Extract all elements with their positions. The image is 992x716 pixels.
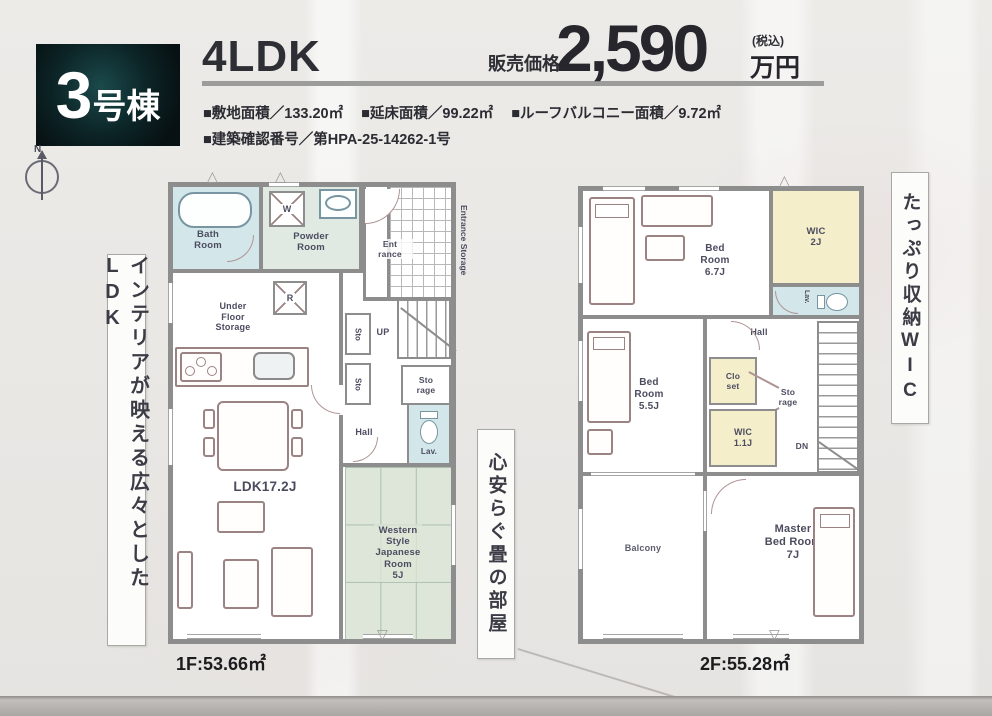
spec-confirmation: ■建築確認番号／第HPA-25-14262-1号 — [203, 132, 451, 148]
wall-ldk-divider — [339, 273, 343, 639]
hall-japanese-door-arc — [353, 437, 378, 462]
compass-needle — [41, 156, 43, 200]
room-powder-label: Powder Room — [275, 231, 347, 253]
toilet-icon — [817, 295, 825, 309]
price-label: 販売価格 — [488, 50, 560, 76]
room-wic-2j-label: WIC 2J — [806, 226, 825, 248]
washing-machine-label: W — [281, 204, 294, 214]
refrigerator-icon: R — [273, 281, 307, 315]
stove-burner — [196, 357, 206, 367]
compass-arrowhead — [37, 150, 47, 159]
plan-type: 4LDK — [202, 32, 321, 82]
toilet-icon — [420, 411, 438, 419]
room-bedroom1-label: Bed Room 6.7J — [675, 243, 755, 278]
price-value: 2,590 — [556, 10, 706, 86]
pillow — [595, 204, 629, 218]
window — [168, 283, 173, 323]
floorplan-1f: Bath Room W Powder Room Ent rance Under … — [168, 182, 456, 644]
kitchen-sink-icon — [253, 352, 295, 380]
stairs-dn-label: DN — [789, 441, 815, 451]
storage-2f-label: Sto rage — [765, 387, 811, 407]
bedroom1-door-arc — [731, 321, 760, 350]
flyer-page: 3 号棟 4LDK 販売価格 2,590 (税込) 万円 ■敷地面積／133.2… — [0, 0, 992, 716]
room-lav-2f: Lav. — [773, 287, 859, 319]
stairs-2f — [817, 321, 859, 473]
ottoman — [223, 559, 259, 609]
toilet-door-arc — [775, 291, 798, 314]
caption-wic-text: たっぷり収納WIC — [897, 192, 924, 405]
building-suffix: 号棟 — [92, 79, 160, 128]
compass-icon: N — [22, 144, 66, 204]
storage-1f: Sto rage — [401, 365, 451, 405]
room-closet: Clo set — [709, 357, 757, 405]
floor1-area-label: 1F:53.66㎡ — [176, 650, 266, 676]
storage-sto-a: Sto — [345, 313, 371, 355]
toilet-bowl-icon — [826, 293, 848, 311]
hall-door-arc — [311, 385, 340, 414]
master-door-arc — [711, 479, 746, 514]
caption-ldk-text: インテリアが映える広々としたLDK — [101, 255, 153, 645]
vent-triangle-icon: △ — [779, 173, 790, 187]
desk — [641, 195, 713, 227]
spec-roof-balcony: ■ルーフバルコニー面積／9.72㎡ — [511, 106, 721, 122]
stove-burner — [207, 366, 217, 376]
window — [168, 409, 173, 465]
storage-1f-label: Sto rage — [417, 375, 436, 395]
spec-floor-area: ■延床面積／99.22㎡ — [361, 106, 493, 122]
stairs-diagonal — [401, 307, 457, 351]
stairs-diagonal — [819, 441, 862, 472]
under-floor-storage-label: Under Floor Storage — [197, 301, 269, 333]
vent-triangle-icon: ▽ — [769, 627, 780, 641]
stairs-1f — [397, 299, 451, 359]
dining-chair — [291, 437, 303, 457]
bed-icon — [589, 197, 635, 305]
room-japanese-label: Western Style Japanese Room 5J — [374, 524, 423, 582]
floorplan-2f: Bed Room 6.7J WIC 2J Lav. Hall Bed Room … — [578, 186, 864, 644]
window — [451, 505, 456, 565]
pillow — [593, 337, 625, 350]
pillow — [820, 514, 850, 528]
spec-line-1: ■敷地面積／133.20㎡ ■延床面積／99.22㎡ ■ルーフバルコニー面積／9… — [203, 102, 721, 123]
tv-board — [177, 551, 193, 609]
room-powder: W Powder Room — [263, 187, 363, 273]
building-badge: 3 号棟 — [36, 44, 180, 146]
header-rule — [202, 81, 824, 86]
bath-door-arc — [227, 235, 254, 262]
spec-line-2: ■建築確認番号／第HPA-25-14262-1号 — [203, 128, 451, 149]
room-balcony-label: Balcony — [607, 543, 679, 554]
room-bedroom1: Bed Room 6.7J — [583, 191, 773, 319]
window — [187, 634, 261, 639]
price-unit: 万円 — [750, 48, 800, 84]
sliding-window — [591, 472, 695, 476]
window — [578, 509, 583, 569]
storage-sto-b: Sto — [345, 363, 371, 405]
wall-bedroom2-right — [703, 319, 707, 476]
window — [578, 227, 583, 283]
building-number: 3 — [56, 62, 93, 128]
room-ldk-label: LDK17.2J — [217, 479, 313, 495]
window — [603, 186, 645, 191]
room-closet-label: Clo set — [726, 371, 740, 391]
stove-icon — [180, 352, 222, 382]
bathtub-icon — [178, 192, 252, 228]
bed-icon — [813, 507, 855, 617]
entrance-storage-text: Entrance Storage — [459, 205, 469, 275]
vent-triangle-icon: △ — [275, 169, 286, 183]
room-entrance-label: Ent rance — [367, 239, 413, 259]
room-lav-2f-label: Lav. — [803, 290, 810, 304]
window — [578, 341, 583, 401]
dining-chair — [203, 409, 215, 429]
window — [703, 491, 707, 531]
refrigerator-label: R — [285, 293, 296, 303]
stairs-up-label: UP — [371, 327, 395, 338]
room-lav-1f: Lav. — [407, 403, 451, 465]
caption-tatami: 心安らぐ畳の部屋 — [477, 429, 515, 659]
caption-ldk: インテリアが映える広々としたLDK — [107, 254, 146, 646]
dining-chair — [203, 437, 215, 457]
coffee-table — [217, 501, 265, 533]
caption-tatami-text: 心安らぐ畳の部屋 — [483, 452, 510, 636]
room-wic-2j: WIC 2J — [773, 191, 859, 287]
room-wic-11j: WIC 1.1J — [709, 409, 777, 467]
caption-wic: たっぷり収納WIC — [891, 172, 929, 424]
window — [603, 634, 683, 639]
sink-icon — [325, 195, 351, 211]
sofa — [271, 547, 313, 617]
window — [679, 186, 719, 191]
room-bath: Bath Room — [173, 187, 263, 273]
window — [733, 634, 789, 639]
room-wic-11j-label: WIC 1.1J — [734, 427, 752, 448]
room-bedroom2-label: Bed Room 5.5J — [617, 377, 681, 412]
storage-sto-b-label: Sto — [354, 378, 363, 391]
spec-site-area: ■敷地面積／133.20㎡ — [203, 106, 343, 122]
vent-triangle-icon: ▽ — [377, 627, 388, 641]
storage-sto-a-label: Sto — [354, 328, 363, 341]
stove-burner — [185, 366, 195, 376]
window — [363, 634, 413, 639]
floor2-area-label: 2F:55.28㎡ — [700, 650, 790, 676]
washing-machine-icon: W — [269, 191, 305, 227]
price-tax-note: (税込) — [752, 32, 784, 49]
room-japanese: Western Style Japanese Room 5J — [345, 467, 451, 639]
toilet-bowl-icon — [420, 420, 438, 444]
entrance-storage-label: Entrance Storage — [459, 205, 469, 309]
bottom-band — [0, 696, 992, 716]
room-lav-1f-label: Lav. — [413, 447, 445, 456]
nightstand — [587, 429, 613, 455]
dining-table — [217, 401, 289, 471]
kitchen-counter — [175, 347, 309, 387]
dining-chair — [291, 409, 303, 429]
vent-triangle-icon: △ — [207, 169, 218, 183]
